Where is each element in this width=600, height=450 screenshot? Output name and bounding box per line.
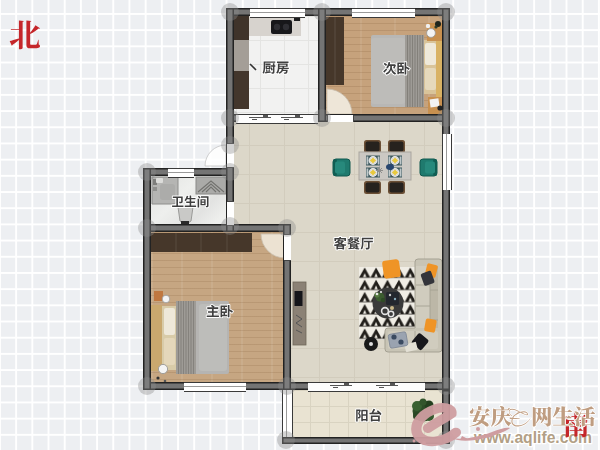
svg-text:www.aqlife.com: www.aqlife.com (473, 429, 592, 446)
